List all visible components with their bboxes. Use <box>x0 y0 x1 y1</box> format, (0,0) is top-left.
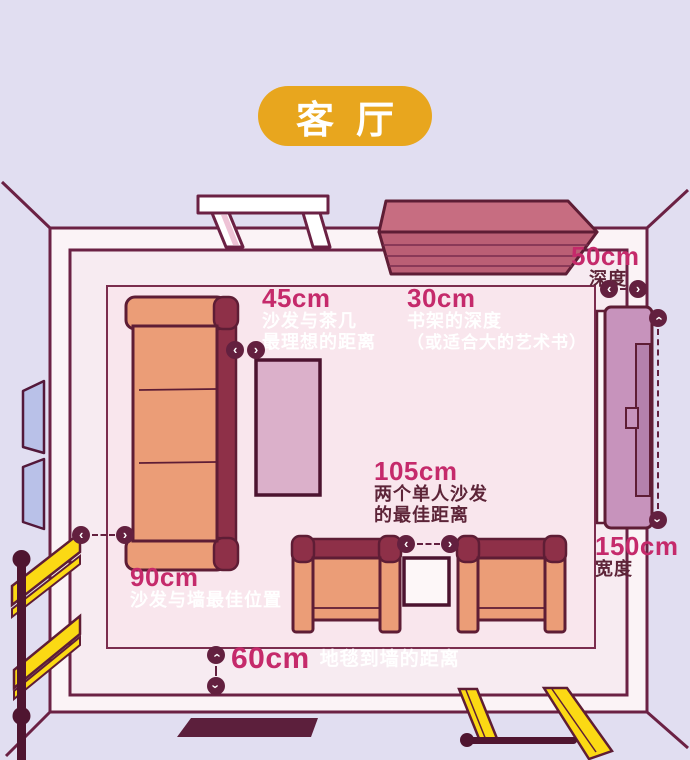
coffee-table <box>256 360 320 495</box>
dim-value: 60cm <box>231 646 310 672</box>
chevron-up-icon: › <box>649 309 667 327</box>
chevron-left-icon: › <box>600 280 618 298</box>
title-text: 客厅 <box>274 89 416 144</box>
dim-value: 45cm <box>262 285 376 311</box>
dim-bookshelf-depth: 30cm 书架的深度 （或适合大的艺术书） <box>407 285 587 353</box>
dim-two-single-sofas: 105cm 两个单人沙发 的最佳距离 <box>374 458 488 526</box>
three-seat-sofa <box>126 297 238 570</box>
title-badge: 客厅 <box>258 86 432 146</box>
dashed-connector <box>215 666 217 676</box>
dim-label: 最理想的距离 <box>262 332 376 353</box>
dim-value: 150cm <box>595 533 678 559</box>
dim-value: 30cm <box>407 285 587 311</box>
dim-sofa-coffee-table: 45cm 沙发与茶几 最理想的距离 <box>262 285 376 353</box>
dashed-connector <box>417 543 440 545</box>
dim-label: 沙发与茶几 <box>262 311 376 332</box>
dim-sofa-wall: 90cm 沙发与墙最佳位置 <box>130 564 282 611</box>
floor-mat <box>177 718 318 737</box>
dim-value: 50cm <box>571 243 640 269</box>
wall-bookshelf <box>379 201 597 274</box>
chevron-left-icon: › <box>72 526 90 544</box>
armchair-left <box>292 536 401 632</box>
dashed-connector <box>620 288 628 290</box>
dim-label: 地毯到墙的距离 <box>320 649 460 670</box>
dashed-connector <box>92 534 115 536</box>
stair-railing <box>12 533 80 760</box>
dim-label: （或适合大的艺术书） <box>407 332 587 353</box>
chevron-left-icon: › <box>226 341 244 359</box>
chevron-right-icon: › <box>441 535 459 553</box>
chevron-down-icon: › <box>649 511 667 529</box>
chevron-down-icon: › <box>207 677 225 695</box>
dim-label: 沙发与墙最佳位置 <box>130 590 282 611</box>
dim-label: 两个单人沙发 <box>374 484 488 505</box>
room-diagram: 客厅 45cm 沙发与茶几 最理想的距离 30cm 书架的深度 （或适合大的艺术… <box>0 0 690 760</box>
side-table <box>404 558 449 605</box>
dim-label: 宽度 <box>595 559 678 580</box>
chevron-up-icon: › <box>207 646 225 664</box>
window <box>23 381 44 529</box>
chevron-right-icon: › <box>116 526 134 544</box>
armchair-right <box>457 536 566 632</box>
dim-carpet-wall: 60cm 地毯到墙的距离 <box>231 646 460 672</box>
display-cabinet <box>597 307 652 528</box>
chevron-right-icon: › <box>247 341 265 359</box>
chevron-left-icon: › <box>397 535 415 553</box>
dim-cabinet-width: 150cm 宽度 <box>595 533 678 580</box>
dim-label: 书架的深度 <box>407 311 587 332</box>
dim-label: 的最佳距离 <box>374 505 488 526</box>
dashed-connector <box>657 329 659 509</box>
dim-value: 105cm <box>374 458 488 484</box>
chevron-right-icon: › <box>629 280 647 298</box>
dim-value: 90cm <box>130 564 282 590</box>
